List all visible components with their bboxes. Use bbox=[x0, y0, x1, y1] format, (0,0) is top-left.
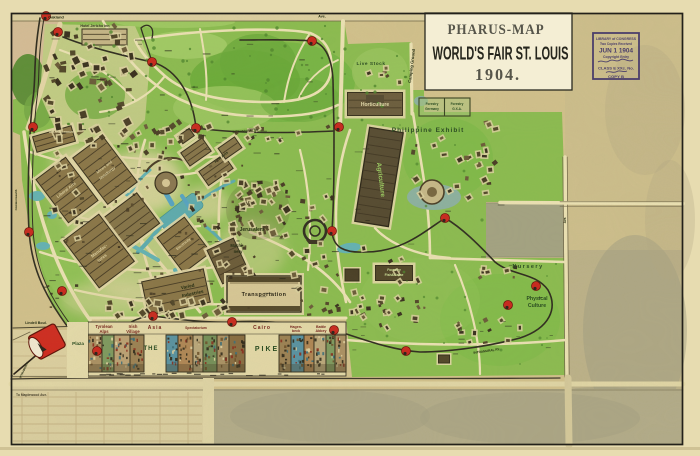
svg-text:PHARUS-MAP: PHARUS-MAP bbox=[448, 22, 545, 38]
svg-text:1904.: 1904. bbox=[475, 65, 521, 84]
svg-text:Two Copies Received: Two Copies Received bbox=[600, 42, 632, 46]
svg-text:COPY B: COPY B bbox=[608, 75, 624, 79]
svg-text:JUN 1 1904: JUN 1 1904 bbox=[599, 49, 634, 55]
svg-text:WORLD'S FAIR ST. LOUIS: WORLD'S FAIR ST. LOUIS bbox=[433, 43, 569, 64]
svg-text:Copyright Entry: Copyright Entry bbox=[603, 55, 629, 59]
svg-text:LIBRARY of CONGRESS: LIBRARY of CONGRESS bbox=[596, 37, 636, 41]
svg-text:CLASS E XXc. No.: CLASS E XXc. No. bbox=[598, 66, 634, 71]
